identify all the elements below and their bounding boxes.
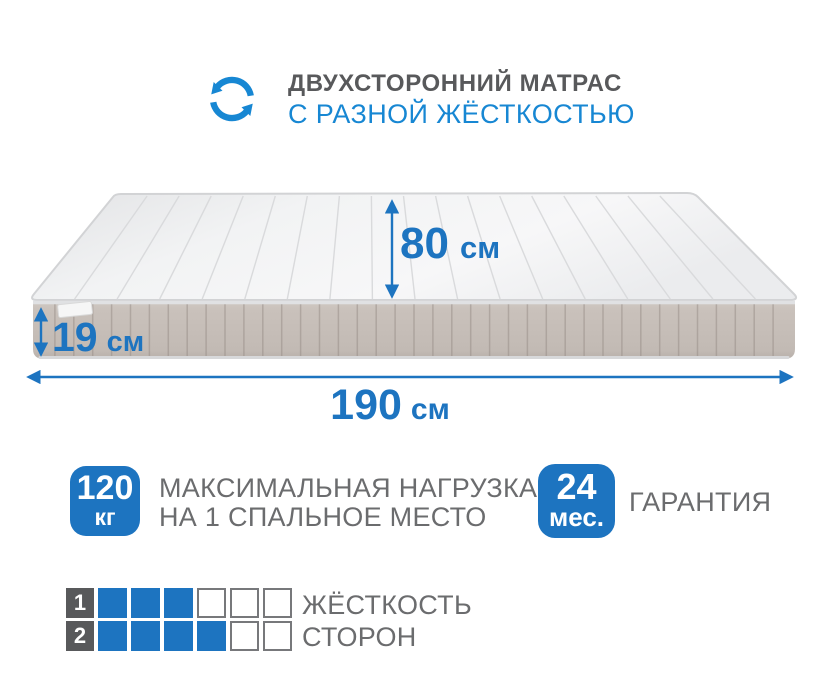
length-dimension-label: 190 см — [250, 381, 530, 430]
firmness-filled-square — [197, 621, 226, 651]
firmness-caption-line1: ЖЁСТКОСТЬ — [302, 589, 472, 621]
warranty-caption: ГАРАНТИЯ — [629, 488, 771, 517]
firmness-scale: 12 — [66, 588, 292, 651]
firmness-filled-square — [164, 621, 193, 651]
firmness-filled-square — [98, 621, 127, 651]
max-load-unit: кг — [70, 505, 140, 529]
firmness-filled-square — [164, 588, 193, 618]
firmness-filled-square — [131, 621, 160, 651]
firmness-caption: ЖЁСТКОСТЬ СТОРОН — [302, 589, 472, 653]
depth-dimension-label: 80 см — [400, 219, 500, 269]
max-load-caption-line2: НА 1 СПАЛЬНОЕ МЕСТО — [159, 503, 537, 532]
firmness-empty-square — [230, 588, 259, 618]
firmness-empty-square — [197, 588, 226, 618]
firmness-filled-square — [98, 588, 127, 618]
height-dimension-label: 19 см — [52, 314, 144, 361]
height-unit: см — [107, 326, 145, 359]
firmness-row-index: 2 — [66, 621, 94, 651]
firmness-empty-square — [263, 588, 292, 618]
firmness-row-index: 1 — [66, 588, 94, 618]
warranty-value: 24 — [538, 469, 615, 504]
length-unit: см — [411, 393, 450, 427]
firmness-filled-square — [131, 588, 160, 618]
depth-unit: см — [460, 230, 500, 266]
max-load-badge: 120 кг — [70, 466, 140, 536]
firmness-row: 1 — [66, 588, 292, 618]
warranty-caption-line1: ГАРАНТИЯ — [629, 488, 771, 517]
length-value: 190 — [330, 381, 402, 430]
firmness-row: 2 — [66, 621, 292, 651]
max-load-caption: МАКСИМАЛЬНАЯ НАГРУЗКА НА 1 СПАЛЬНОЕ МЕСТ… — [159, 474, 537, 532]
warranty-badge: 24 мес. — [538, 464, 615, 538]
firmness-empty-square — [230, 621, 259, 651]
warranty-unit: мес. — [538, 504, 615, 531]
max-load-caption-line1: МАКСИМАЛЬНАЯ НАГРУЗКА — [159, 474, 537, 503]
firmness-caption-line2: СТОРОН — [302, 621, 472, 653]
depth-value: 80 — [400, 219, 449, 269]
height-value: 19 — [52, 314, 98, 361]
max-load-value: 120 — [70, 472, 140, 505]
firmness-empty-square — [263, 621, 292, 651]
mattress-infographic: ДВУХСТОРОННИЙ МАТРАС С РАЗНОЙ ЖЁСТКОСТЬЮ — [0, 0, 816, 700]
